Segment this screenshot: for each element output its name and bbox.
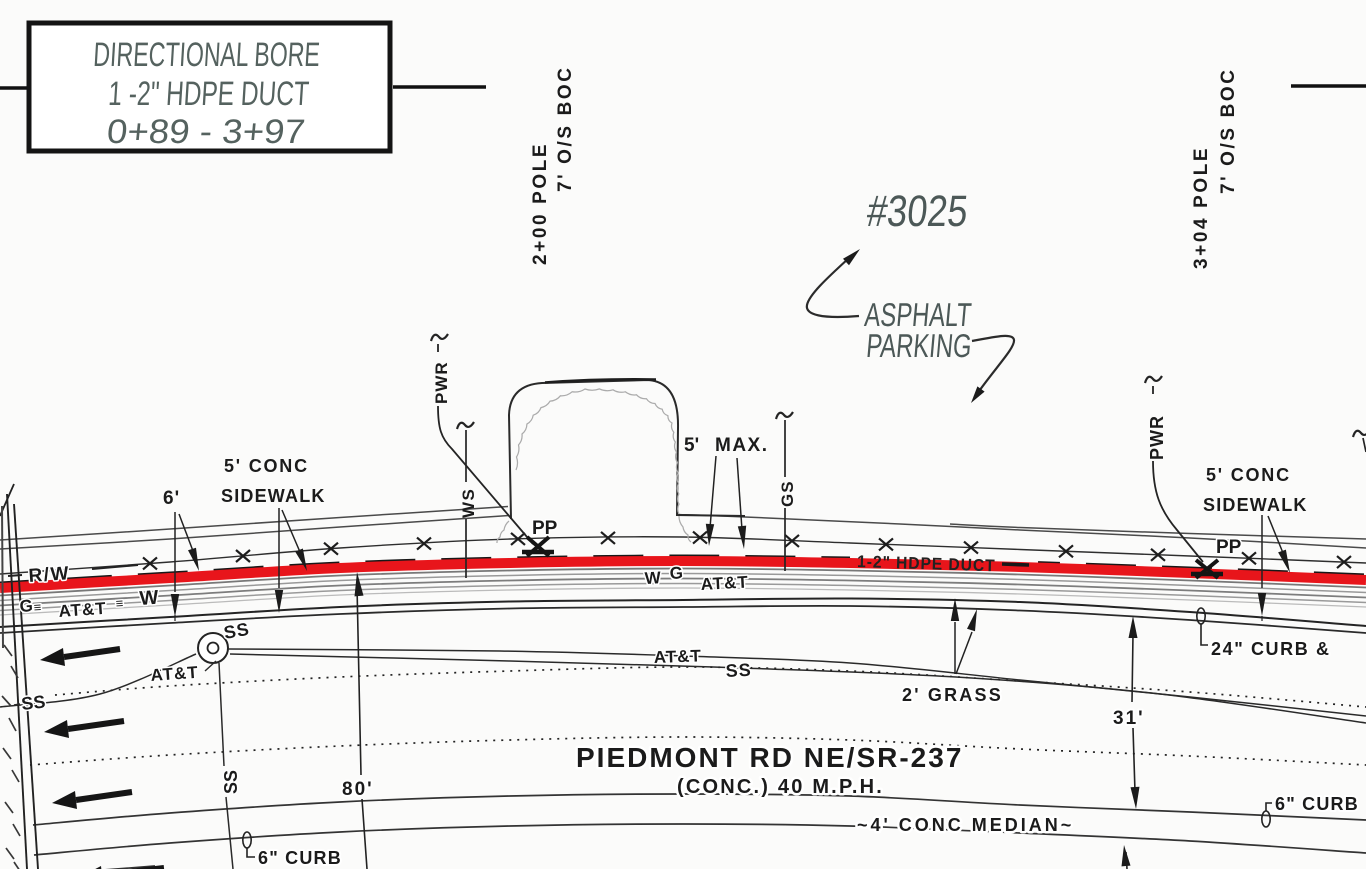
svg-text:PWR: PWR <box>432 361 451 404</box>
svg-text:G: G <box>19 596 34 616</box>
svg-text:AT&T: AT&T <box>700 573 749 594</box>
svg-text:WS: WS <box>459 488 478 518</box>
svg-text:80': 80' <box>342 779 374 800</box>
svg-text:24" CURB &: 24" CURB & <box>1211 639 1331 659</box>
svg-text:0+89 - 3+97: 0+89 - 3+97 <box>105 112 307 150</box>
svg-text:G: G <box>669 563 683 583</box>
svg-text:SIDEWALK: SIDEWALK <box>221 486 326 506</box>
svg-text:1 -2" HDPE DUCT: 1 -2" HDPE DUCT <box>107 75 310 113</box>
svg-text:5': 5' <box>684 435 699 456</box>
svg-text:SS: SS <box>221 770 241 794</box>
svg-text:6" CURB: 6" CURB <box>1275 794 1359 814</box>
svg-text:5' CONC: 5' CONC <box>1206 465 1291 485</box>
svg-text:6" CURB: 6" CURB <box>258 848 342 868</box>
svg-text:~4' CONC MEDIAN~: ~4' CONC MEDIAN~ <box>857 815 1074 835</box>
svg-text:DIRECTIONAL BORE: DIRECTIONAL BORE <box>92 37 321 74</box>
svg-text:2' GRASS: 2' GRASS <box>902 685 1003 705</box>
svg-text:≡: ≡ <box>115 595 124 610</box>
svg-text:MAX.: MAX. <box>715 435 769 456</box>
svg-text:PP: PP <box>532 518 558 539</box>
svg-text:PP: PP <box>1216 537 1242 558</box>
svg-text:AT&T: AT&T <box>58 599 107 621</box>
svg-text:(CONC.) 40 M.P.H.: (CONC.) 40 M.P.H. <box>677 776 884 798</box>
svg-text:≡: ≡ <box>33 599 42 614</box>
svg-text:31': 31' <box>1113 708 1145 729</box>
svg-text:AT&T: AT&T <box>653 646 702 667</box>
svg-text:PIEDMONT RD NE/SR-237: PIEDMONT RD NE/SR-237 <box>576 742 963 773</box>
svg-text:SIDEWALK: SIDEWALK <box>1203 495 1308 515</box>
svg-text:7' O/S BOC: 7' O/S BOC <box>1218 67 1239 194</box>
svg-text:SS: SS <box>725 660 752 681</box>
svg-text:AT&T: AT&T <box>150 663 199 685</box>
svg-text:R/W: R/W <box>28 563 71 587</box>
svg-text:PARKING: PARKING <box>865 328 973 365</box>
svg-text:7' O/S BOC: 7' O/S BOC <box>555 65 576 192</box>
svg-text:5' CONC: 5' CONC <box>224 456 309 476</box>
svg-text:2+00 POLE: 2+00 POLE <box>530 142 551 265</box>
svg-text:W: W <box>644 568 662 588</box>
svg-text:#3025: #3025 <box>865 186 970 236</box>
svg-text:SS: SS <box>20 692 46 714</box>
svg-text:PWR: PWR <box>1147 415 1167 460</box>
svg-text:W: W <box>139 587 159 610</box>
svg-text:3+04 POLE: 3+04 POLE <box>1191 146 1212 269</box>
svg-text:6': 6' <box>163 488 180 509</box>
svg-text:GS: GS <box>778 480 797 507</box>
